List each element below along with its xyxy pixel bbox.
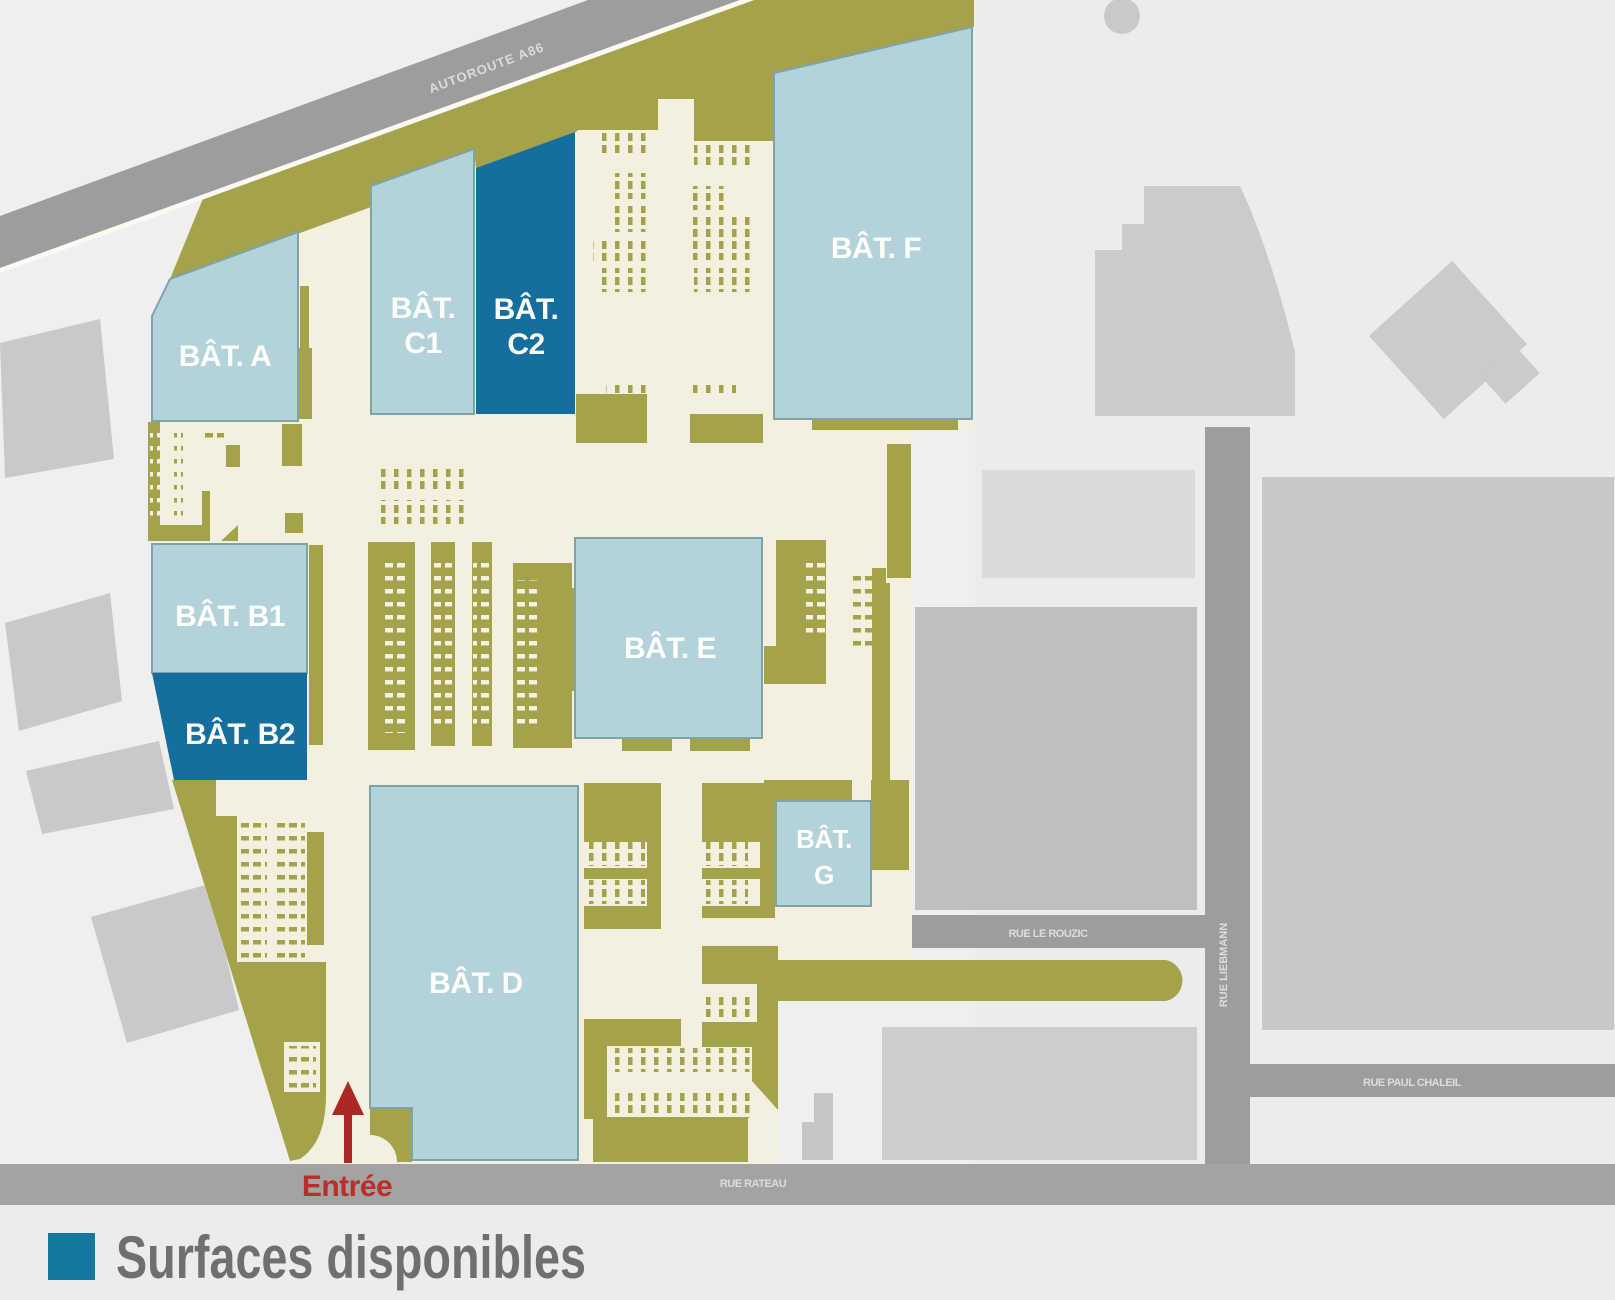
svg-text:BÂT. A: BÂT. A bbox=[179, 339, 272, 373]
svg-text:C2: C2 bbox=[507, 328, 544, 361]
svg-text:RUE LE ROUZIC: RUE LE ROUZIC bbox=[1008, 928, 1088, 940]
svg-text:BÂT. D: BÂT. D bbox=[429, 966, 523, 1000]
svg-text:BÂT. B1: BÂT. B1 bbox=[175, 599, 285, 633]
svg-text:RUE LIEBMANN: RUE LIEBMANN bbox=[1218, 923, 1230, 1007]
svg-text:Entrée: Entrée bbox=[302, 1170, 392, 1203]
svg-text:BÂT.: BÂT. bbox=[796, 824, 852, 854]
svg-text:BÂT.: BÂT. bbox=[494, 292, 559, 326]
svg-text:BÂT. B2: BÂT. B2 bbox=[185, 717, 295, 751]
svg-text:BÂT. E: BÂT. E bbox=[624, 631, 716, 665]
svg-text:G: G bbox=[814, 860, 834, 890]
svg-text:C1: C1 bbox=[404, 327, 441, 360]
svg-text:Surfaces disponibles: Surfaces disponibles bbox=[116, 1224, 586, 1291]
svg-text:BÂT. F: BÂT. F bbox=[831, 231, 922, 265]
svg-text:RUE RATEAU: RUE RATEAU bbox=[720, 1178, 787, 1190]
svg-text:RUE PAUL CHALEIL: RUE PAUL CHALEIL bbox=[1363, 1077, 1462, 1089]
svg-text:BÂT.: BÂT. bbox=[391, 291, 456, 325]
